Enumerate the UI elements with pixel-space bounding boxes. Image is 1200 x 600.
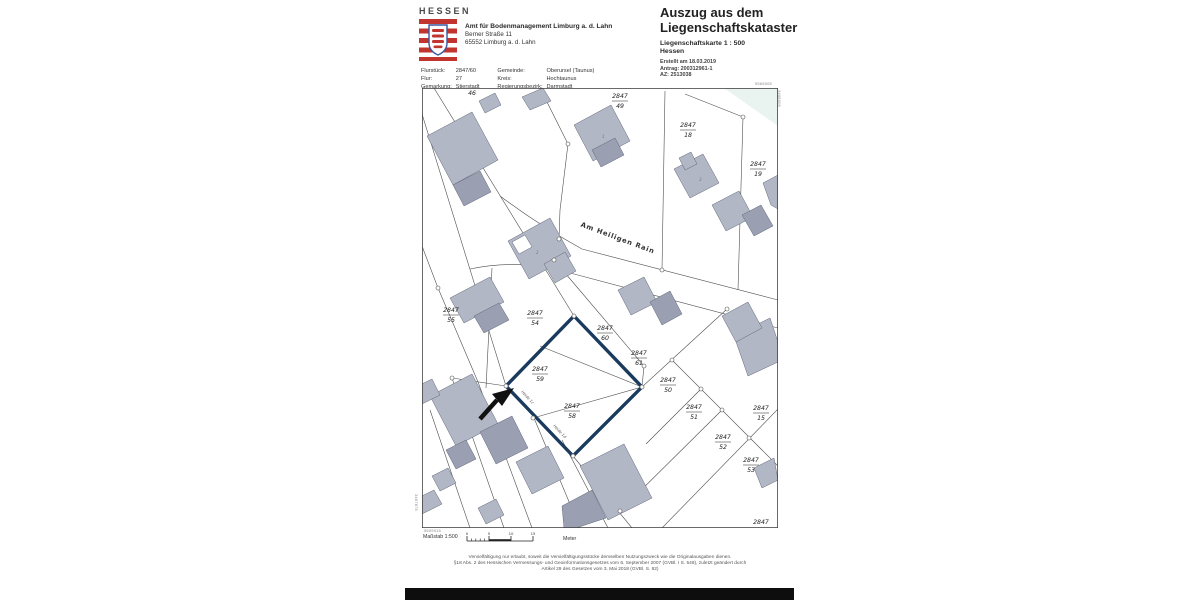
svg-text:2847: 2847 xyxy=(750,161,766,168)
svg-text:2847: 2847 xyxy=(527,310,543,317)
cut-parcel-label: 46 xyxy=(468,90,476,97)
request-number: Antrag: 200312961-1 xyxy=(660,66,795,73)
document-title-block: Auszug aus dem Liegenschaftskataster Lie… xyxy=(660,6,795,79)
meta-value: Oberursel (Taunus) xyxy=(547,68,597,74)
meta-value: 2847/60 xyxy=(456,68,482,74)
svg-text:54: 54 xyxy=(531,320,539,327)
svg-text:2847: 2847 xyxy=(564,403,580,410)
svg-text:49: 49 xyxy=(616,103,624,110)
svg-text:2847: 2847 xyxy=(612,93,628,100)
hessen-wordmark: HESSEN xyxy=(419,6,471,16)
title-line-2: Liegenschaftskataster xyxy=(660,21,795,36)
scale-tick-label: 15 xyxy=(531,531,536,536)
document-page: HESSEN Amt für Bodenmanagement Limburg a… xyxy=(405,0,795,600)
cadastral-map: Am Heiligen Rain 284749 284718 284719 28… xyxy=(422,88,778,528)
meta-label: Flur: xyxy=(421,76,454,82)
svg-text:51: 51 xyxy=(690,414,698,421)
svg-text:52: 52 xyxy=(719,444,727,451)
scale-tick-label: 0 xyxy=(466,531,469,536)
issuing-office-block: Amt für Bodenmanagement Limburg a. d. La… xyxy=(465,23,655,47)
map-type-label: Liegenschaftskarte 1 : 500 xyxy=(660,40,795,48)
created-date: Erstellt am 18.03.2019 xyxy=(660,59,795,66)
svg-text:60: 60 xyxy=(601,335,609,342)
svg-text:2847: 2847 xyxy=(753,405,769,412)
page-bottom-edge xyxy=(405,588,794,600)
svg-text:59: 59 xyxy=(536,376,544,383)
svg-text:2847: 2847 xyxy=(532,366,548,373)
svg-text:2847: 2847 xyxy=(660,377,676,384)
shield-icon xyxy=(429,25,447,55)
scale-tick-label: 5 xyxy=(488,531,491,536)
scale-unit-label: Meter xyxy=(563,536,576,542)
svg-text:53: 53 xyxy=(747,467,755,474)
svg-text:61: 61 xyxy=(635,360,643,367)
page-title: Auszug aus dem Liegenschaftskataster xyxy=(660,6,795,35)
meta-label: Flurstück: xyxy=(421,68,454,74)
legal-line: Artikel 29 des Gesetzes vom 3. Mai 2018 … xyxy=(415,567,785,573)
hessen-coat-of-arms-icon xyxy=(419,19,457,66)
region-label: Hessen xyxy=(660,48,795,56)
house-number: 1 xyxy=(602,134,605,139)
scale-label: Maßstab 1:500 xyxy=(423,534,458,540)
svg-text:55: 55 xyxy=(447,317,455,324)
cut-parcel-label: 2847 xyxy=(753,519,769,526)
scale-bar: 0 5 10 15 xyxy=(463,531,559,550)
legal-notice: Vervielfältigung nur erlaubt, soweit die… xyxy=(415,555,785,573)
svg-text:50: 50 xyxy=(664,387,672,394)
meta-label: Gemeinde: xyxy=(483,68,544,74)
title-line-1: Auszug aus dem xyxy=(660,6,795,21)
table-row: Flurstück: 2847/60 Gemeinde: Oberursel (… xyxy=(421,68,596,74)
svg-text:58: 58 xyxy=(568,413,576,420)
meta-value: Hochtaunus xyxy=(547,76,597,82)
file-number: AZ: 2513038 xyxy=(660,72,795,79)
grid-coordinate-label: 5509915 xyxy=(424,528,441,533)
meta-value: 27 xyxy=(456,76,482,82)
meta-label: Kreis: xyxy=(483,76,544,82)
svg-text:2847: 2847 xyxy=(631,350,647,357)
svg-text:2847: 2847 xyxy=(443,307,459,314)
grid-coordinate-label: 3467875 xyxy=(414,494,419,511)
office-name: Amt für Bodenmanagement Limburg a. d. La… xyxy=(465,23,655,31)
svg-text:2847: 2847 xyxy=(743,457,759,464)
svg-text:2847: 2847 xyxy=(597,325,613,332)
svg-text:2847: 2847 xyxy=(686,404,702,411)
scale-tick-label: 10 xyxy=(509,531,514,536)
svg-text:2847: 2847 xyxy=(715,434,731,441)
office-city: 65552 Limburg a. d. Lahn xyxy=(465,39,655,47)
office-street: Berner Straße 11 xyxy=(465,31,655,39)
svg-text:18: 18 xyxy=(684,132,692,139)
grid-coordinate-label: 5565005 xyxy=(755,81,772,86)
svg-text:15: 15 xyxy=(757,415,765,422)
svg-text:19: 19 xyxy=(754,171,762,178)
svg-text:2847: 2847 xyxy=(680,122,696,129)
table-row: Flur: 27 Kreis: Hochtaunus xyxy=(421,76,596,82)
